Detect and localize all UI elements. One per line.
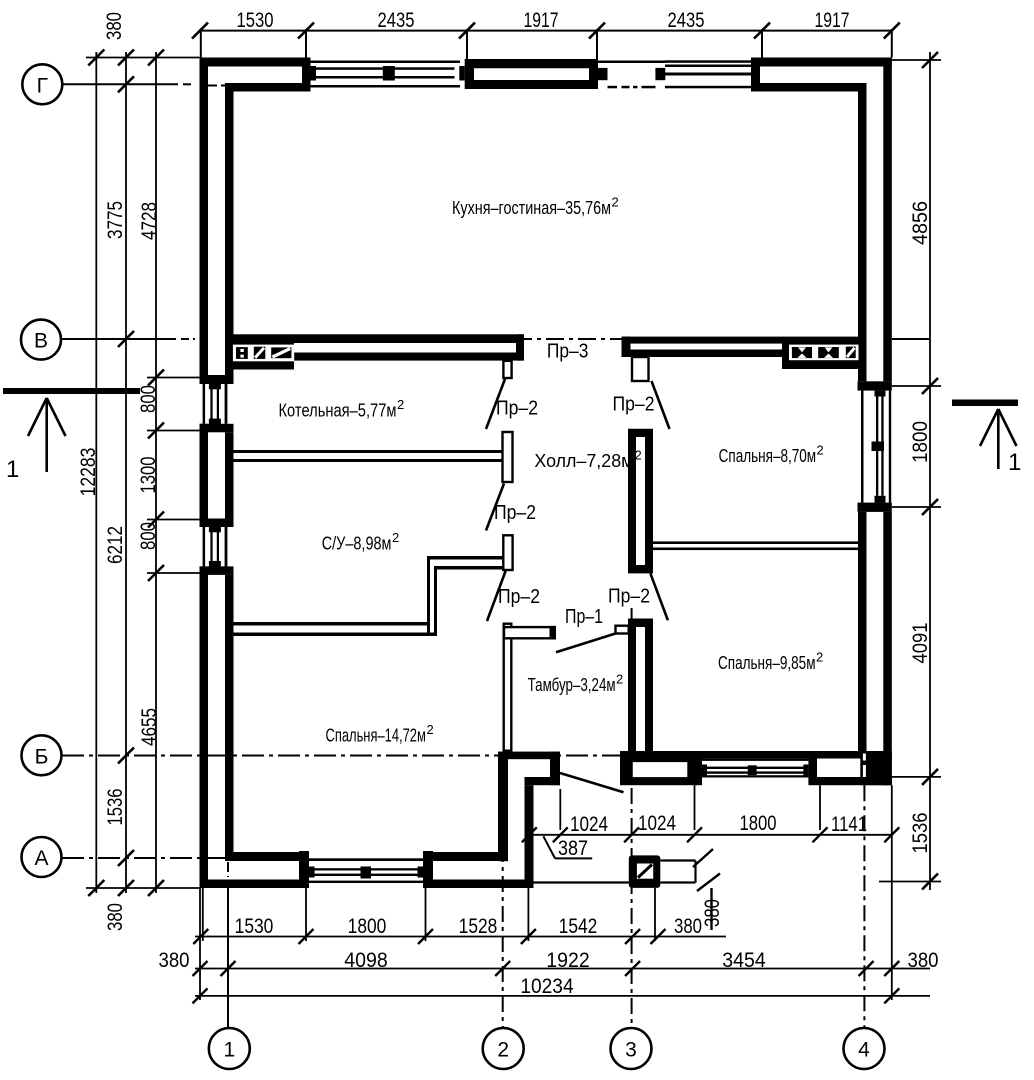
svg-text:Кухня–гостиная–35,76м: Кухня–гостиная–35,76м xyxy=(452,198,611,218)
svg-text:1917: 1917 xyxy=(815,9,850,32)
svg-text:6212: 6212 xyxy=(104,526,127,564)
svg-text:1024: 1024 xyxy=(638,811,676,835)
svg-text:2: 2 xyxy=(397,397,404,412)
svg-text:2: 2 xyxy=(816,650,823,665)
svg-text:С/У–8,98м: С/У–8,98м xyxy=(322,534,392,554)
svg-text:387: 387 xyxy=(558,836,588,860)
svg-text:1536: 1536 xyxy=(104,789,127,826)
svg-text:Г: Г xyxy=(37,74,48,97)
svg-text:3775: 3775 xyxy=(104,201,127,239)
svg-text:Б: Б xyxy=(35,745,49,768)
svg-text:Пр–2: Пр–2 xyxy=(496,397,538,419)
svg-text:Пр–3: Пр–3 xyxy=(547,341,589,363)
svg-text:А: А xyxy=(34,847,48,870)
svg-text:1800: 1800 xyxy=(348,915,387,938)
svg-text:В: В xyxy=(34,330,48,353)
svg-text:1800: 1800 xyxy=(909,421,932,463)
svg-text:12283: 12283 xyxy=(77,448,100,497)
svg-text:3: 3 xyxy=(625,1039,637,1062)
svg-text:1528: 1528 xyxy=(459,915,498,938)
svg-text:Котельная–5,77м: Котельная–5,77м xyxy=(279,400,397,420)
svg-text:Холл–7,28м: Холл–7,28м xyxy=(534,451,633,471)
svg-text:Пр–2: Пр–2 xyxy=(498,586,540,608)
svg-text:4: 4 xyxy=(858,1039,870,1062)
svg-text:Спальня–14,72м: Спальня–14,72м xyxy=(326,726,426,746)
svg-text:4856: 4856 xyxy=(909,201,932,245)
svg-text:4655: 4655 xyxy=(137,708,161,746)
svg-text:4728: 4728 xyxy=(137,202,161,240)
svg-text:Пр–2: Пр–2 xyxy=(608,586,650,608)
svg-text:Спальня–8,70м: Спальня–8,70м xyxy=(719,446,817,466)
svg-text:1: 1 xyxy=(6,456,19,483)
svg-text:380: 380 xyxy=(103,12,126,40)
svg-text:1024: 1024 xyxy=(570,812,608,836)
svg-text:Тамбур–3,24м: Тамбур–3,24м xyxy=(528,675,616,695)
svg-text:1300: 1300 xyxy=(136,456,160,493)
svg-text:1536: 1536 xyxy=(909,813,932,854)
svg-text:2435: 2435 xyxy=(378,9,415,32)
svg-text:Пр–2: Пр–2 xyxy=(613,394,655,416)
svg-text:1: 1 xyxy=(1008,449,1021,476)
svg-text:1922: 1922 xyxy=(546,948,590,972)
svg-text:2: 2 xyxy=(635,447,642,462)
svg-text:2435: 2435 xyxy=(668,9,705,32)
svg-text:800: 800 xyxy=(136,522,160,550)
svg-text:3454: 3454 xyxy=(722,948,766,972)
svg-text:1542: 1542 xyxy=(559,915,598,938)
svg-text:Пр–2: Пр–2 xyxy=(494,502,536,524)
svg-text:1530: 1530 xyxy=(235,915,274,938)
svg-text:2: 2 xyxy=(497,1039,509,1062)
svg-text:2: 2 xyxy=(616,672,623,687)
svg-text:1800: 1800 xyxy=(740,811,777,835)
svg-text:380: 380 xyxy=(674,915,702,938)
svg-text:380: 380 xyxy=(701,899,724,927)
svg-text:4091: 4091 xyxy=(909,623,932,664)
svg-text:2: 2 xyxy=(612,195,619,210)
svg-text:2: 2 xyxy=(427,722,434,737)
svg-text:Спальня–9,85м: Спальня–9,85м xyxy=(718,653,816,673)
svg-text:1917: 1917 xyxy=(524,9,559,32)
svg-text:2: 2 xyxy=(392,530,399,545)
svg-text:10234: 10234 xyxy=(520,974,573,998)
svg-text:4098: 4098 xyxy=(344,948,388,972)
svg-text:Пр–1: Пр–1 xyxy=(565,606,603,628)
svg-text:2: 2 xyxy=(817,443,824,458)
svg-text:1530: 1530 xyxy=(237,9,274,32)
svg-text:380: 380 xyxy=(908,948,939,972)
svg-text:1: 1 xyxy=(223,1039,235,1062)
svg-text:380: 380 xyxy=(159,948,190,972)
svg-text:1141: 1141 xyxy=(831,812,867,836)
svg-text:380: 380 xyxy=(104,903,127,931)
